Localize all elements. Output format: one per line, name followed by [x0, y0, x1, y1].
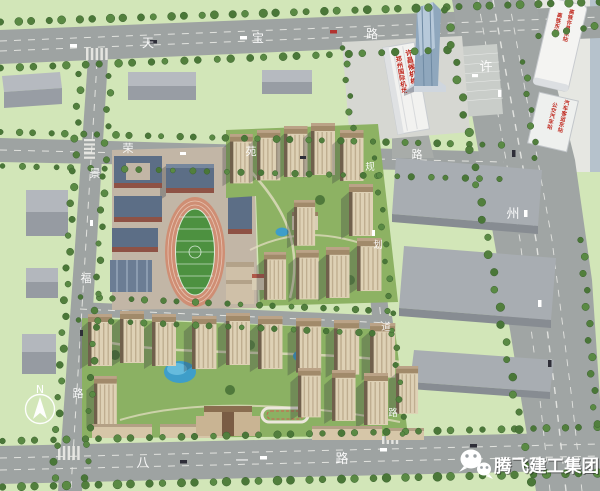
- tree: [259, 9, 268, 18]
- tree: [370, 475, 377, 482]
- tree: [484, 251, 492, 259]
- tree: [258, 325, 264, 331]
- tree: [466, 146, 474, 154]
- tree: [527, 123, 534, 130]
- tree: [527, 478, 536, 487]
- tree: [412, 4, 421, 13]
- tree: [473, 2, 481, 10]
- tree: [191, 433, 198, 440]
- tree: [273, 136, 280, 143]
- road-label-jingfu-0: 景: [90, 167, 101, 180]
- tree: [96, 291, 102, 297]
- tree: [222, 477, 231, 486]
- tree: [52, 426, 59, 433]
- tree: [52, 475, 59, 482]
- tree: [136, 167, 142, 173]
- tree: [242, 432, 249, 439]
- tree: [191, 479, 199, 487]
- tree: [50, 458, 57, 465]
- tree: [480, 427, 486, 433]
- tree: [323, 328, 329, 334]
- tree: [204, 169, 210, 175]
- road-label-guihua-0: 规: [365, 162, 375, 173]
- tree: [114, 435, 122, 443]
- tree: [107, 89, 114, 96]
- tree: [81, 475, 88, 482]
- tree: [505, 2, 512, 9]
- tree: [320, 431, 326, 437]
- tree: [206, 323, 212, 329]
- tree: [27, 17, 34, 24]
- tree: [96, 61, 103, 68]
- tree: [340, 46, 345, 51]
- tree: [395, 174, 400, 179]
- tree: [272, 9, 280, 17]
- tree: [148, 59, 155, 66]
- tree: [334, 306, 339, 311]
- tree: [102, 166, 107, 171]
- tree: [387, 276, 393, 282]
- tree: [54, 165, 59, 170]
- tree: [587, 320, 594, 327]
- tree: [192, 299, 199, 306]
- tree: [425, 4, 433, 12]
- tree: [447, 41, 454, 48]
- road-label-xuzhou-0: 许: [479, 60, 492, 75]
- tree: [575, 424, 581, 430]
- tree: [359, 50, 366, 57]
- tree: [383, 259, 388, 264]
- tree: [291, 327, 296, 332]
- tree: [443, 175, 448, 180]
- tree: [382, 474, 391, 483]
- tree: [351, 475, 359, 483]
- tree: [533, 139, 539, 145]
- tree: [56, 361, 63, 368]
- tree: [319, 476, 326, 483]
- tree: [0, 438, 5, 444]
- tree: [19, 163, 25, 169]
- road-label-jingfu-1: 福: [81, 271, 92, 285]
- tree: [87, 424, 94, 431]
- tree: [303, 9, 309, 15]
- tree: [128, 320, 133, 325]
- tree: [51, 437, 57, 443]
- tree: [108, 319, 114, 325]
- road-label-rongyuan-2: 路: [412, 148, 423, 161]
- tree: [393, 362, 398, 367]
- tree: [446, 472, 454, 480]
- running-track: [165, 197, 225, 307]
- tree: [401, 414, 407, 420]
- tree: [472, 182, 478, 188]
- tree: [146, 434, 152, 440]
- tree: [313, 52, 320, 59]
- road-label-jingfu-2: 路: [73, 387, 84, 400]
- tree: [522, 443, 530, 451]
- tree: [65, 233, 71, 239]
- tree: [224, 169, 229, 174]
- tree: [67, 248, 74, 255]
- tree: [351, 429, 358, 436]
- watermark-brand: 腾飞建工集团: [494, 456, 599, 477]
- tree: [472, 164, 479, 171]
- tree: [279, 53, 287, 61]
- tree: [379, 50, 385, 56]
- tree: [376, 172, 382, 178]
- tree: [516, 409, 523, 416]
- tree: [547, 0, 554, 7]
- tree: [520, 60, 525, 65]
- tree: [333, 7, 340, 14]
- tree: [76, 16, 84, 24]
- tree: [271, 326, 277, 332]
- tree: [258, 170, 264, 176]
- tree: [478, 198, 486, 206]
- tree: [337, 475, 345, 483]
- tree: [229, 11, 237, 19]
- tree: [31, 437, 38, 444]
- tree: [65, 281, 71, 287]
- tree: [89, 15, 96, 22]
- tree: [95, 436, 101, 442]
- tree: [378, 224, 384, 230]
- tree: [168, 12, 176, 20]
- tree: [61, 130, 68, 137]
- tree: [0, 164, 5, 169]
- tree: [50, 63, 56, 69]
- tree: [341, 173, 346, 178]
- tree: [50, 482, 57, 489]
- tree: [67, 200, 74, 207]
- tree: [301, 304, 308, 311]
- tree: [562, 424, 569, 431]
- tree: [460, 111, 467, 118]
- tree: [581, 253, 588, 260]
- tree: [428, 174, 434, 180]
- tree: [69, 216, 75, 222]
- tree: [466, 427, 472, 433]
- tree: [529, 107, 534, 112]
- tree: [93, 274, 99, 280]
- tree: [256, 302, 262, 308]
- tree: [126, 480, 134, 488]
- tree: [270, 303, 276, 309]
- tree: [242, 477, 250, 485]
- tree: [82, 61, 89, 68]
- tree: [592, 387, 598, 393]
- tree: [580, 270, 587, 277]
- tree: [552, 30, 559, 37]
- tree: [375, 190, 380, 195]
- tree: [63, 313, 70, 320]
- tree: [190, 168, 196, 174]
- tree: [100, 224, 106, 230]
- tree: [83, 441, 89, 447]
- tree: [16, 129, 23, 136]
- tree: [110, 296, 116, 302]
- tree: [447, 140, 454, 147]
- tree: [63, 265, 70, 272]
- tree: [504, 356, 510, 362]
- tree: [319, 138, 324, 143]
- tree: [0, 484, 6, 491]
- tree: [289, 304, 294, 309]
- tree: [338, 137, 345, 144]
- tree: [58, 16, 66, 24]
- tree: [582, 303, 589, 310]
- tree: [441, 7, 447, 13]
- tree: [97, 207, 104, 214]
- tree: [346, 109, 353, 116]
- tree: [119, 14, 127, 22]
- tree: [454, 59, 461, 66]
- tree: [113, 480, 122, 489]
- tree: [129, 297, 134, 302]
- tree: [400, 432, 405, 437]
- tree: [306, 431, 312, 437]
- tree: [178, 433, 185, 440]
- tree: [150, 14, 156, 20]
- scene-canvas: 许昌候机楼 郑州国际机场 高铁许昌东站 高铁东站 汽车客运东站 公交汽车站: [0, 0, 600, 491]
- tree: [563, 28, 570, 35]
- tree: [121, 166, 128, 173]
- tree: [141, 297, 148, 304]
- tree: [95, 481, 102, 488]
- tree: [344, 61, 350, 67]
- tree: [516, 1, 524, 9]
- tree: [239, 325, 244, 330]
- tree: [343, 77, 349, 83]
- tree: [447, 24, 455, 32]
- tree: [97, 257, 104, 264]
- tree: [365, 307, 371, 313]
- tree: [465, 128, 474, 137]
- tree: [96, 241, 101, 246]
- tree: [352, 7, 359, 14]
- road-label-guihua-1: 划: [373, 239, 383, 251]
- road-label-xuzhou-1: 州: [506, 207, 519, 222]
- tree: [17, 482, 25, 490]
- tree: [223, 432, 230, 439]
- tree: [190, 134, 196, 140]
- tree: [128, 59, 135, 66]
- tree: [515, 426, 523, 434]
- tree: [60, 297, 67, 304]
- tree: [90, 341, 96, 347]
- tree: [584, 287, 590, 293]
- tree: [170, 168, 175, 173]
- tree: [242, 10, 249, 17]
- tree: [127, 435, 134, 442]
- tree: [158, 134, 163, 139]
- tree: [34, 164, 40, 170]
- tree: [356, 329, 363, 336]
- tree: [18, 437, 25, 444]
- tree: [536, 33, 542, 39]
- tree: [112, 131, 119, 138]
- tree: [31, 482, 39, 490]
- tree: [160, 434, 166, 440]
- tree: [238, 302, 243, 307]
- tree: [181, 57, 189, 65]
- tree: [30, 63, 37, 70]
- tree: [159, 480, 166, 487]
- tree: [372, 156, 377, 161]
- tree: [352, 306, 359, 313]
- tree: [360, 172, 366, 178]
- tree: [402, 474, 410, 482]
- tree: [384, 242, 390, 248]
- tree: [255, 432, 261, 438]
- tree: [103, 106, 109, 112]
- road-label-tianbao-0: 天: [142, 36, 154, 50]
- tree: [145, 133, 151, 139]
- road-label-tianbao-2: 路: [366, 26, 378, 41]
- tree: [115, 59, 123, 67]
- tree: [93, 324, 99, 330]
- tree: [348, 93, 353, 98]
- tree: [238, 169, 245, 176]
- tree: [106, 14, 115, 23]
- tree: [101, 140, 108, 147]
- tree: [194, 57, 201, 64]
- tree: [385, 308, 391, 314]
- road-label-bayi-0: 八: [136, 456, 149, 471]
- tree: [62, 481, 71, 490]
- tree: [415, 474, 422, 481]
- tree: [415, 428, 421, 434]
- tree: [497, 321, 505, 329]
- tree: [290, 9, 297, 16]
- tree: [255, 477, 262, 484]
- tree: [55, 443, 61, 449]
- tree: [77, 87, 84, 94]
- road-label-bayi-2: 路: [335, 451, 348, 467]
- tree: [415, 140, 421, 146]
- tree: [55, 394, 61, 400]
- tree: [214, 56, 220, 62]
- tree: [320, 7, 328, 15]
- tree: [509, 373, 517, 381]
- tree: [321, 305, 327, 311]
- tree: [273, 476, 282, 485]
- tree: [63, 436, 70, 443]
- tree: [103, 157, 109, 163]
- tree: [76, 71, 82, 77]
- tree: [581, 26, 587, 32]
- tree: [394, 345, 400, 351]
- tree: [210, 11, 218, 19]
- tree: [456, 3, 462, 9]
- tree: [503, 339, 510, 346]
- tree: [459, 94, 467, 102]
- tree: [286, 136, 293, 143]
- tree: [59, 378, 65, 384]
- tree: [69, 168, 75, 174]
- tree: [226, 324, 232, 330]
- tree: [304, 327, 311, 334]
- tree: [126, 132, 133, 139]
- tree: [408, 174, 415, 181]
- tree: [16, 64, 24, 72]
- tree: [0, 129, 3, 134]
- tree: [532, 155, 537, 160]
- tree: [73, 151, 80, 158]
- tree: [524, 91, 530, 97]
- road-label-tianbao-1: 宝: [252, 31, 264, 45]
- tree: [351, 138, 357, 144]
- tree: [394, 5, 401, 12]
- tree: [434, 427, 442, 435]
- tree: [565, 0, 574, 7]
- tree: [478, 216, 485, 223]
- tree: [391, 48, 399, 56]
- tree: [199, 12, 206, 19]
- tree: [87, 374, 94, 381]
- tree: [162, 58, 168, 64]
- tree: [174, 299, 179, 304]
- tree: [371, 429, 377, 435]
- tree: [509, 391, 516, 398]
- tree: [160, 321, 166, 327]
- tree: [433, 472, 442, 481]
- tree: [225, 301, 231, 307]
- tree: [76, 318, 81, 323]
- tree: [476, 176, 482, 182]
- tree: [29, 130, 35, 136]
- tree: [95, 318, 101, 324]
- tree: [146, 480, 154, 488]
- tree: [585, 337, 591, 343]
- tree: [210, 135, 216, 141]
- entrance-gate: [196, 406, 260, 436]
- road-label-rongyuan-0: 荣: [123, 142, 134, 155]
- tree: [73, 103, 80, 110]
- tree: [71, 135, 78, 142]
- tree: [363, 6, 371, 14]
- tree: [174, 322, 179, 327]
- tree: [577, 0, 585, 6]
- tree: [137, 14, 144, 21]
- tree: [274, 431, 282, 439]
- tree: [161, 298, 167, 304]
- tree: [531, 426, 537, 432]
- tree: [59, 330, 65, 336]
- tree: [589, 353, 597, 361]
- tree: [91, 357, 98, 364]
- tree: [383, 139, 390, 146]
- tree: [590, 404, 596, 410]
- tree: [380, 207, 385, 212]
- tree: [490, 268, 498, 276]
- tree: [496, 303, 505, 312]
- tree: [338, 430, 345, 437]
- tree: [337, 329, 342, 334]
- tree: [82, 481, 90, 489]
- tree: [398, 380, 403, 385]
- tree: [306, 476, 314, 484]
- tree: [491, 286, 498, 293]
- tree: [587, 370, 594, 377]
- tree: [78, 295, 83, 300]
- tree: [306, 137, 312, 143]
- tree: [411, 48, 418, 55]
- tree: [345, 50, 353, 58]
- tree: [306, 171, 312, 177]
- masterplan-rendering: 许昌候机楼 郑州国际机场 高铁许昌东站 高铁东站 汽车客运东站 公交汽车站: [0, 0, 600, 491]
- tree: [255, 136, 261, 142]
